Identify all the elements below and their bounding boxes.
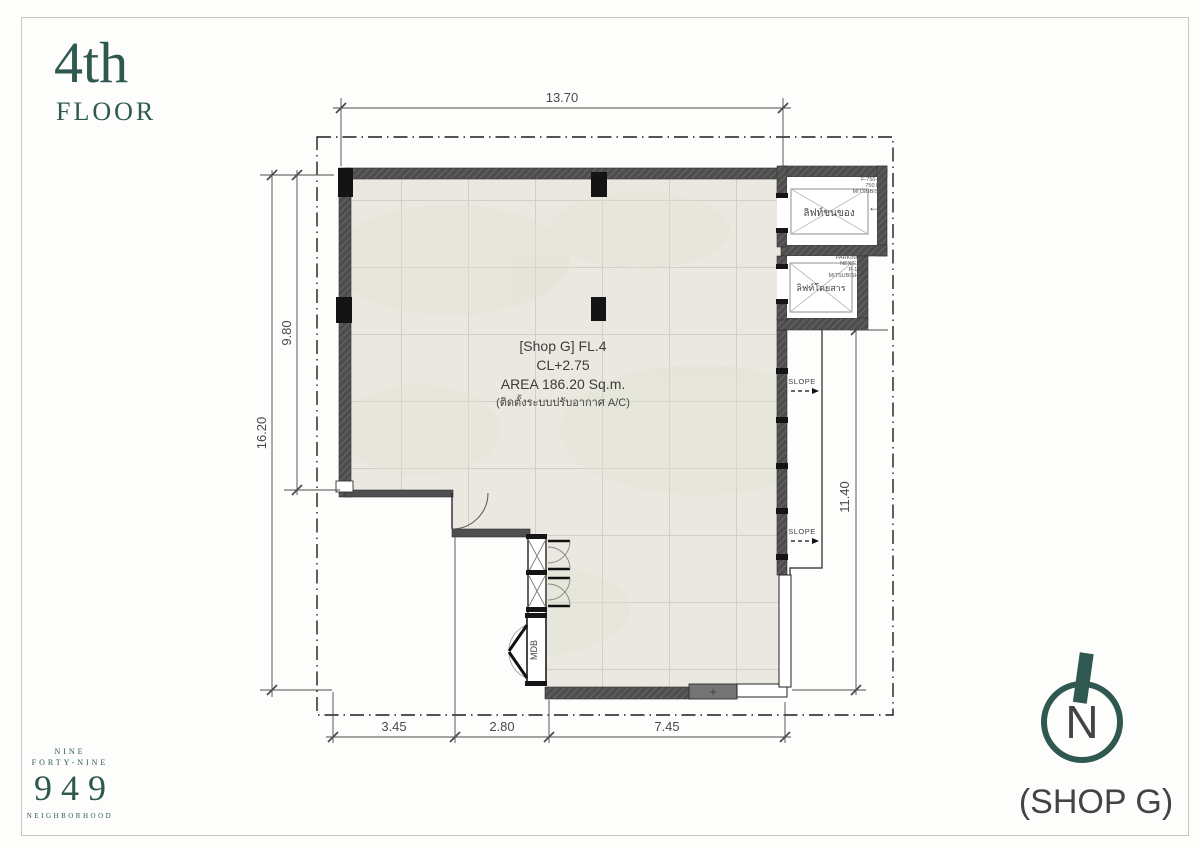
compass-north-letter: N <box>1065 696 1098 748</box>
mdb-room: MDB <box>509 613 547 686</box>
floor-plan-page: 4th FLOOR NINE FORTY-NINE 949 NEIGHBORHO… <box>0 0 1200 849</box>
shop-label: (SHOP G) <box>1019 783 1173 821</box>
dim-left-outer: 16.20 <box>254 417 269 450</box>
north-compass: N <box>1044 652 1120 760</box>
unit-name: [Shop G] FL.4 <box>519 338 606 354</box>
service-lift-name: ลิฟท์ขนของ <box>803 207 854 219</box>
passenger-lift-spec-line4: MITSUBISHI <box>829 273 861 279</box>
dim-left-inner: 9.80 <box>279 320 294 345</box>
dim-bottom-mid: 2.80 <box>489 719 514 734</box>
wall-fixture-plus: + <box>709 684 717 699</box>
shop-floor-area <box>330 177 840 687</box>
service-lift-spec-line4: MITSUBISHI <box>853 189 885 195</box>
slope-label-2: SLOPE <box>788 527 816 536</box>
dim-bottom-right: 7.45 <box>654 719 679 734</box>
floor-plan-svg: ลิฟท์ขนของ ลิฟท์โดยสาร SERVICE F-750-2S … <box>0 0 1200 849</box>
unit-area: AREA 186.20 Sq.m. <box>501 376 626 392</box>
slope-arrow-2: SLOPE <box>788 527 819 544</box>
dim-bottom-left: 3.45 <box>381 719 406 734</box>
lift-direction-arrow-icon: ← <box>868 200 880 214</box>
unit-note: (ติดตั้งระบบปรับอากาศ A/C) <box>496 394 630 409</box>
unit-ceiling: CL+2.75 <box>536 357 590 373</box>
passenger-lift-name: ลิฟท์โดยสาร <box>796 282 845 293</box>
dim-right: 11.40 <box>837 481 852 513</box>
mdb-door-leaves <box>509 625 527 678</box>
slope-label-1: SLOPE <box>788 377 816 386</box>
ramp-corridor: SLOPE SLOPE <box>788 330 822 575</box>
slope-arrow-1: SLOPE <box>788 377 819 394</box>
mdb-label: MDB <box>529 640 539 660</box>
elevator-core: ลิฟท์ขนของ ลิฟท์โดยสาร SERVICE F-750-2S … <box>776 166 887 330</box>
dim-top: 13.70 <box>546 90 579 105</box>
